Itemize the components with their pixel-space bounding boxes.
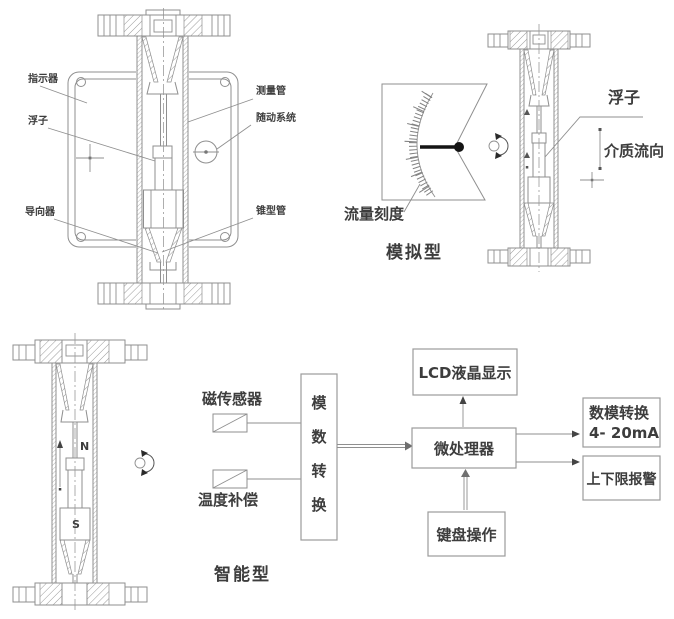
tube: N S <box>52 333 97 612</box>
label-cone-tube: 锥型管 <box>256 204 286 217</box>
scale-major-ticks <box>410 94 429 196</box>
label-pole-s: S <box>72 518 80 531</box>
label-flow-scale: 流量刻度 <box>344 205 405 223</box>
magnetic-sensor-symbol <box>213 414 247 432</box>
rotation-icon <box>135 450 154 476</box>
top-flange <box>13 340 147 363</box>
lcd-box: LCD液晶显示 <box>413 349 517 395</box>
dial-panel <box>382 84 487 200</box>
keyboard-box: 键盘操作 <box>428 512 505 556</box>
label-da-line1: 数模转换 <box>589 404 650 422</box>
analog-meter-body: 浮子 介质流向 <box>488 24 664 272</box>
flow-direction-line <box>599 128 602 170</box>
label-temp-compensation: 温度补偿 <box>198 491 258 509</box>
scale-arc <box>417 93 435 197</box>
analog-dial: 流量刻度 模拟型 <box>344 84 508 263</box>
label-float: 浮子 <box>28 114 48 127</box>
rotation-icon <box>489 133 508 159</box>
label-medium-flow: 介质流向 <box>603 142 664 160</box>
label-guide: 导向器 <box>25 205 56 218</box>
cross-section-drawing: 指示器 浮子 导向器 测量管 随动系统 锥型管 <box>25 8 296 312</box>
mcu-box: 微处理器 <box>412 428 516 468</box>
label-keyboard: 键盘操作 <box>435 526 496 544</box>
label-measuring-tube: 测量管 <box>256 84 286 97</box>
flow-up-arrow <box>524 152 530 158</box>
da-converter-box: 数模转换 4- 20mA <box>583 398 660 447</box>
arrow-mcu-to-lcd <box>460 396 467 427</box>
rotameter-structure-diagram: 指示器 浮子 导向器 测量管 随动系统 锥型管 流量刻度 模拟型 <box>0 0 674 619</box>
leader-follow-up-system <box>217 125 251 149</box>
center-mark <box>76 144 104 172</box>
bus-arrow-keyboard-to-mcu <box>461 469 470 510</box>
ad-char-1: 模 <box>311 394 327 412</box>
bottom-flange <box>13 583 147 605</box>
label-analog-type: 模拟型 <box>386 242 443 263</box>
bottom-flange <box>98 283 230 309</box>
label-follow-up-system: 随动系统 <box>256 111 296 124</box>
label-alarm: 上下限报警 <box>587 471 657 488</box>
label-float-analog: 浮子 <box>608 88 640 107</box>
ad-converter-box: 模 数 转 换 <box>301 374 337 540</box>
ad-char-4: 换 <box>311 496 327 514</box>
arrow-mcu-to-da <box>516 431 580 438</box>
measuring-tube <box>136 8 189 312</box>
label-da-line2: 4- 20mA <box>589 424 659 442</box>
ad-char-2: 数 <box>311 428 327 446</box>
flow-up-arrow <box>524 109 530 115</box>
label-magnetic-sensor: 磁传感器 <box>202 390 263 408</box>
follow-up-magnet-circle <box>193 141 219 163</box>
center-mark <box>580 172 604 188</box>
pointer-needle <box>420 142 464 152</box>
label-indicator: 指示器 <box>28 72 59 85</box>
temp-compensation-symbol <box>213 470 247 488</box>
ad-char-3: 转 <box>311 462 326 480</box>
leader-flow-scale <box>404 184 420 212</box>
label-pole-n: N <box>80 440 89 453</box>
label-smart-type: 智能型 <box>214 564 271 585</box>
arrow-mcu-to-alarm <box>516 459 580 466</box>
leader-measuring-tube <box>188 99 253 122</box>
leader-indicator <box>40 86 87 103</box>
label-mcu: 微处理器 <box>433 440 495 458</box>
bus-arrow-ad-to-mcu <box>337 442 413 451</box>
label-lcd: LCD液晶显示 <box>418 364 511 382</box>
block-diagram: 磁传感器 温度补偿 模 数 转 换 LCD液晶显示 <box>198 349 660 556</box>
scale-minor-ticks <box>413 95 431 195</box>
top-flange <box>98 10 230 36</box>
alarm-box: 上下限报警 <box>583 456 660 500</box>
flow-up-arrow-line <box>57 440 63 491</box>
